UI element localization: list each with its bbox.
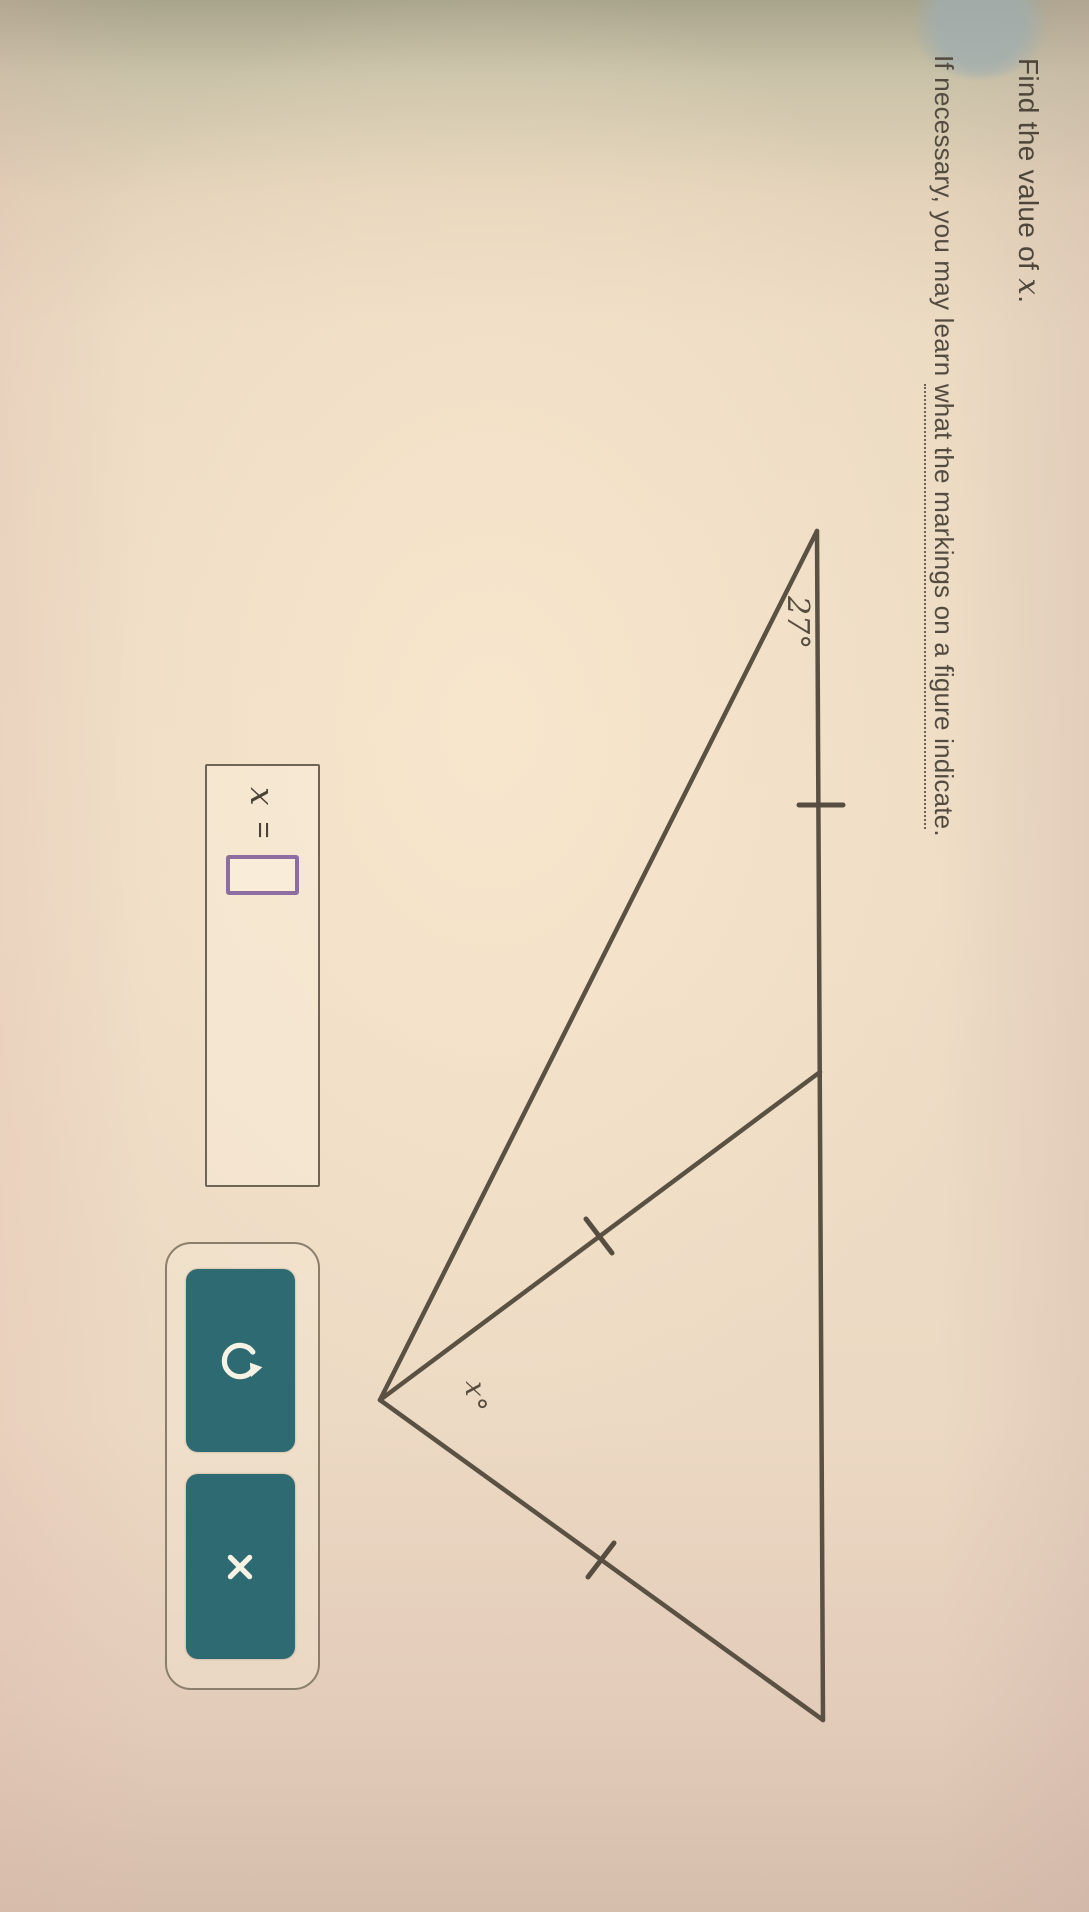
clear-button[interactable] [186, 1474, 295, 1659]
answer-box: x = [205, 764, 320, 1187]
equals-sign: = [246, 822, 279, 839]
figure-top-side [817, 531, 823, 1720]
x-mark-icon [218, 1544, 264, 1590]
triangle-figure: 27° x° [0, 0, 1089, 1912]
tick-mark-right-side [588, 1543, 614, 1577]
problem-stage: Find the value of x. If necessary, you m… [0, 0, 1089, 1912]
undo-arrow-icon [216, 1336, 266, 1386]
answer-toolbar [165, 1242, 320, 1690]
answer-input[interactable] [226, 855, 299, 895]
figure-left-long-side [380, 531, 817, 1400]
angle-label-x: x° [459, 1381, 492, 1411]
angle-label-27: 27° [780, 595, 815, 649]
tick-mark-cevian [586, 1219, 612, 1253]
undo-button[interactable] [186, 1269, 295, 1452]
answer-variable: x [243, 787, 282, 806]
